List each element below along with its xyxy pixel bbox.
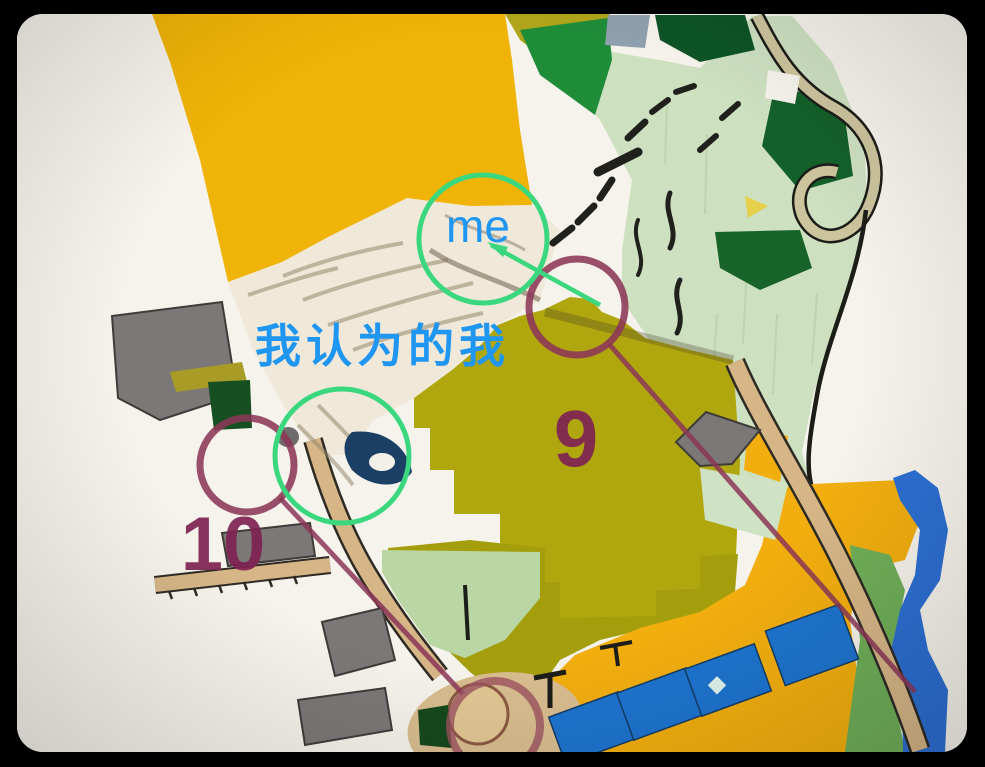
loop-white-gap (765, 70, 800, 104)
control-number-9: 9 (554, 394, 599, 483)
pond-center (369, 453, 395, 471)
screenshot-frame: 9 10 me 我认为的我 (0, 0, 985, 767)
round-structure (448, 684, 508, 744)
orienteering-map: 9 10 me 我认为的我 (17, 14, 967, 752)
control-number-10: 10 (181, 502, 266, 587)
gray-blue-patch (605, 15, 650, 48)
me-label: me (446, 200, 510, 252)
terrain-layer (17, 14, 967, 752)
map-photo: 9 10 me 我认为的我 (17, 14, 967, 752)
self-perception-label: 我认为的我 (255, 320, 510, 372)
